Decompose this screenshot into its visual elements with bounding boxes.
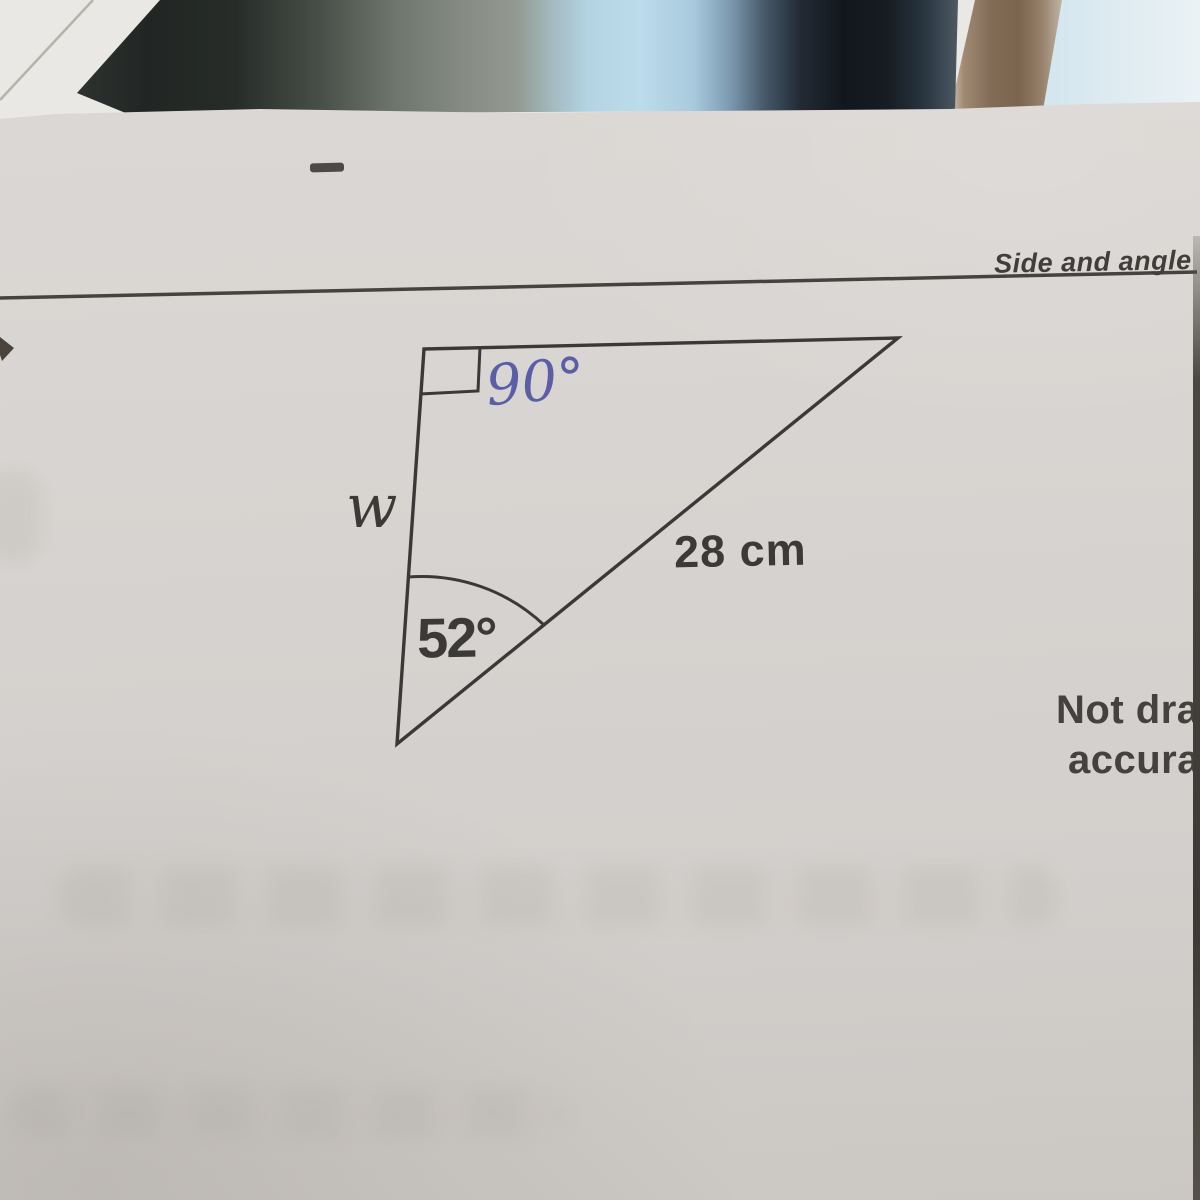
photo-right-edge-shadow (1193, 236, 1200, 1200)
right-angle-label: 90° (484, 351, 588, 415)
base-angle-label: 52° (417, 609, 497, 666)
triangle-outline (397, 338, 898, 744)
not-drawn-note-line1: Not drawn (1056, 690, 1200, 730)
right-angle-mark (420, 347, 480, 394)
diagram-line-art (0, 0, 1200, 1200)
not-drawn-note-line2: accurately (1068, 740, 1200, 780)
hypotenuse-label: 28 cm (674, 527, 808, 575)
worksheet-photo: Side and angle w 90° 52° 28 cm Not drawn… (0, 0, 1200, 1200)
printed-dash (310, 163, 344, 173)
page-title: Side and angle (994, 247, 1192, 278)
pen-tick-mark (0, 337, 14, 361)
side-w-label: w (346, 477, 397, 537)
